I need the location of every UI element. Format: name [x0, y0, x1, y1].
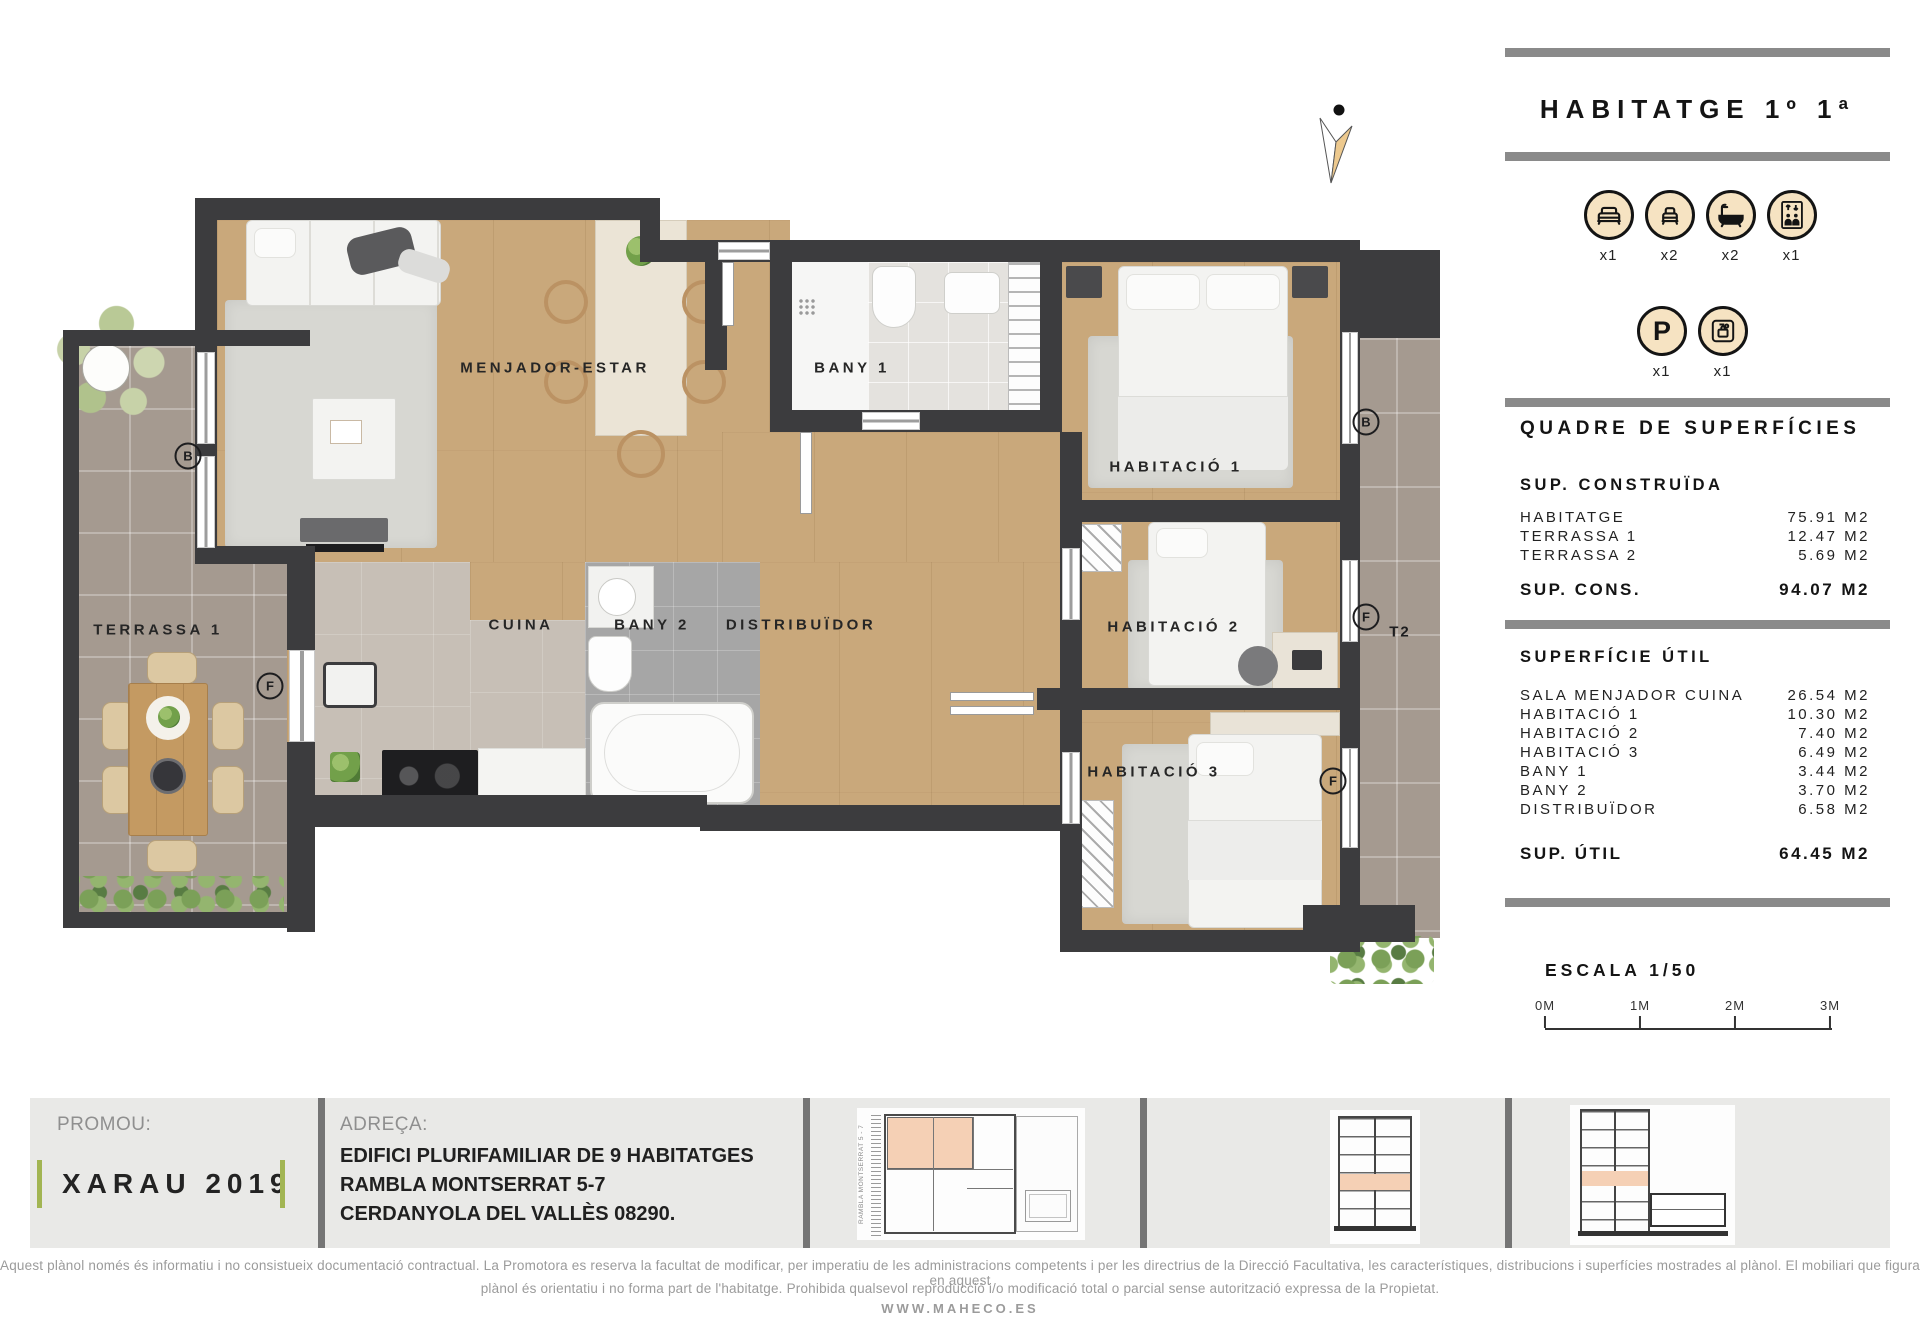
tl: 0M	[1535, 998, 1555, 1013]
room-label: TERRASSA 1	[93, 622, 222, 639]
i	[887, 1169, 1013, 1170]
window	[1342, 748, 1358, 848]
terrace-chair	[212, 766, 244, 814]
surface-row: SALA MENJADOR CUINA26.54 M2	[1520, 686, 1870, 705]
siteplan-hatch	[871, 1112, 881, 1236]
room-label: BANY 1	[814, 360, 890, 377]
circle	[1334, 105, 1345, 116]
nightstand	[1066, 266, 1102, 298]
i	[967, 1188, 1013, 1189]
logo-accent-right	[280, 1160, 285, 1208]
surface-row: BANY 13.44 M2	[1520, 762, 1870, 781]
i	[1374, 1116, 1376, 1226]
door-opening	[1062, 548, 1080, 620]
span: 3.70 M2	[1798, 781, 1870, 800]
bar	[1505, 48, 1890, 57]
window	[1342, 560, 1358, 642]
tree-top	[82, 344, 130, 392]
section-thumbnail-2	[1570, 1105, 1735, 1245]
sofa-cushion	[254, 228, 296, 258]
amenity: x1	[1694, 306, 1751, 380]
terrace-door	[289, 650, 315, 742]
bath2-toilet	[588, 636, 632, 692]
plan-marker: T2	[1389, 624, 1411, 641]
wall	[1060, 500, 1358, 522]
g	[1782, 202, 1802, 228]
storage-icon	[1698, 306, 1748, 356]
terrace-vase-plant	[158, 706, 180, 728]
bed3-duvet	[1188, 820, 1322, 880]
nightstand	[1292, 266, 1328, 298]
span: 64.45 M2	[1779, 844, 1870, 864]
wall	[63, 330, 79, 928]
double-bed-icon	[1584, 190, 1634, 240]
amenity-count: x2	[1661, 247, 1679, 264]
g	[1712, 321, 1732, 341]
wall	[1040, 240, 1062, 432]
terrace-chair	[212, 702, 244, 750]
circle	[1793, 214, 1797, 218]
wall	[287, 795, 707, 827]
page-title: HABITATGE 1º 1ª	[1505, 94, 1890, 125]
wall	[287, 742, 315, 932]
room-label: HABITACIÓ 3	[1087, 764, 1220, 781]
tm	[1829, 1016, 1831, 1028]
i	[1652, 1209, 1724, 1210]
svg	[1714, 198, 1748, 232]
scale-label: ESCALA 1/50	[1545, 960, 1699, 981]
span: DISTRIBUÏDOR	[1520, 800, 1658, 819]
address-block: EDIFICI PLURIFAMILIAR DE 9 HABITATGESRAM…	[340, 1142, 754, 1229]
address-line: RAMBLA MONTSERRAT 5-7	[340, 1171, 754, 1200]
span: HABITACIÓ 1	[1520, 705, 1640, 724]
bath1-shower-floor	[782, 262, 870, 418]
wall	[287, 546, 315, 650]
fdiv	[803, 1098, 810, 1248]
bar	[1505, 898, 1890, 907]
surfaces-heading: QUADRE DE SUPERFÍCIES	[1520, 418, 1860, 440]
span: SUP. CONS.	[1520, 580, 1641, 600]
promoter-label: PROMOU:	[57, 1114, 151, 1136]
text: P	[1653, 316, 1671, 346]
tv	[306, 544, 384, 552]
room-label: CUINA	[489, 617, 554, 634]
surface-row: TERRASSA 25.69 M2	[1520, 546, 1870, 565]
bathtub-inner	[604, 714, 740, 792]
span: HABITATGE	[1520, 508, 1625, 527]
tm	[1734, 1016, 1736, 1028]
section-thumbnail-1	[1330, 1110, 1420, 1244]
window	[197, 456, 215, 548]
door-leaf	[950, 692, 1034, 701]
surface-row: HABITACIÓ 36.49 M2	[1520, 743, 1870, 762]
svg	[1592, 198, 1626, 232]
kitchen-plant	[330, 752, 360, 782]
g	[1662, 208, 1677, 224]
svg	[1775, 198, 1809, 232]
kitchen-sink	[323, 662, 377, 708]
bed1-pillow	[1206, 274, 1280, 310]
terrace-chair	[147, 652, 197, 684]
built-heading: SUP. CONSTRUÏDA	[1520, 476, 1723, 495]
amenity: x1	[1580, 190, 1637, 264]
dining-chair	[617, 430, 665, 478]
span: 5.69 M2	[1798, 546, 1870, 565]
wall	[770, 240, 792, 432]
span: SALA MENJADOR CUINA	[1520, 686, 1744, 705]
kitchen-notch	[470, 562, 586, 620]
built-total: SUP. CONS. 94.07 M2	[1520, 580, 1870, 600]
span: BANY 1	[1520, 762, 1588, 781]
g	[1719, 205, 1742, 226]
amenity-count: x1	[1600, 247, 1618, 264]
span: 12.47 M2	[1787, 527, 1870, 546]
useful-rows: SALA MENJADOR CUINA26.54 M2 HABITACIÓ 11…	[1520, 686, 1870, 819]
wall	[1303, 905, 1415, 942]
wall	[63, 330, 310, 346]
desk-3	[1210, 712, 1340, 736]
wall	[195, 198, 660, 220]
circle	[1786, 214, 1790, 218]
fdiv	[1140, 1098, 1147, 1248]
north-arrow-icon	[1310, 98, 1360, 193]
coffee-table-book	[330, 420, 362, 444]
address-label: ADREÇA:	[340, 1114, 428, 1136]
tv-console	[300, 518, 388, 542]
span: 6.49 M2	[1798, 743, 1870, 762]
siteplan-thumbnail: RAMBLA MONTSERRAT 5 - 7	[857, 1108, 1085, 1240]
door-opening	[862, 412, 920, 430]
scale-tick: 0M	[1535, 998, 1555, 1028]
span: HABITACIÓ 2	[1520, 724, 1640, 743]
terrace-chair	[147, 840, 197, 872]
tl: 3M	[1820, 998, 1840, 1013]
svg	[1653, 198, 1687, 232]
bar	[1505, 152, 1890, 161]
span: 75.91 M2	[1787, 508, 1870, 527]
surface-row: BANY 23.70 M2	[1520, 781, 1870, 800]
wall	[1060, 930, 1342, 952]
scale-tick: 3M	[1820, 998, 1840, 1028]
useful-heading: SUPERFÍCIE ÚTIL	[1520, 648, 1713, 667]
surface-row: TERRASSA 112.47 M2	[1520, 527, 1870, 546]
door-leaf	[800, 432, 812, 514]
bath2-sink	[598, 578, 636, 616]
path	[1793, 205, 1797, 210]
i	[1029, 1194, 1067, 1218]
scale-line	[1545, 1028, 1832, 1030]
amenity-count: x1	[1783, 247, 1801, 264]
room-label: HABITACIÓ 1	[1109, 459, 1242, 476]
plan-marker: F	[1353, 604, 1380, 631]
bar	[1505, 398, 1890, 407]
path	[1786, 205, 1790, 210]
amenity-count: x1	[1653, 363, 1671, 380]
surface-row: HABITACIÓ 27.40 M2	[1520, 724, 1870, 743]
bed2-pillow	[1156, 528, 1208, 558]
i	[933, 1117, 934, 1231]
surface-row: DISTRIBUÏDOR6.58 M2	[1520, 800, 1870, 819]
legal-line-2: plànol és orientatiu i no forma part de …	[0, 1281, 1920, 1296]
room-label: HABITACIÓ 2	[1107, 619, 1240, 636]
fdiv	[1505, 1098, 1512, 1248]
i	[1578, 1231, 1728, 1236]
amenity: x2	[1641, 190, 1698, 264]
rect	[1718, 330, 1727, 337]
wall	[63, 912, 313, 928]
shower-drain	[798, 298, 816, 316]
door-opening	[1062, 752, 1080, 824]
scale-tick: 2M	[1725, 998, 1745, 1028]
single-bed-icon	[1645, 190, 1695, 240]
bar	[1505, 620, 1890, 629]
room-label: MENJADOR-ESTAR	[460, 360, 650, 377]
tl: 2M	[1725, 998, 1745, 1013]
address-line: CERDANYOLA DEL VALLÈS 08290.	[340, 1200, 754, 1229]
svg	[1706, 314, 1740, 348]
scale-tick: 1M	[1630, 998, 1650, 1028]
i	[973, 1117, 974, 1169]
parking-icon: P	[1637, 306, 1687, 356]
plan-marker: B	[175, 443, 202, 470]
plan-marker: F	[257, 673, 284, 700]
door-leaf	[722, 262, 734, 326]
door-leaf	[950, 706, 1034, 715]
svg: P	[1645, 314, 1679, 348]
laptop-2	[1292, 650, 1322, 670]
span: TERRASSA 2	[1520, 546, 1638, 565]
span: 7.40 M2	[1798, 724, 1870, 743]
path	[1785, 220, 1798, 226]
floorplan-page: MENJADOR-ESTARBANY 1HABITACIÓ 1TERRASSA …	[0, 0, 1920, 1321]
terrace-bowl	[150, 758, 186, 794]
span: TERRASSA 1	[1520, 527, 1638, 546]
span: 3.44 M2	[1798, 762, 1870, 781]
tl: 1M	[1630, 998, 1650, 1013]
plan-marker: F	[1320, 768, 1347, 795]
wall	[700, 805, 1082, 831]
section2-wing	[1650, 1193, 1726, 1227]
bath1-sink	[944, 272, 1000, 314]
entry-opening	[718, 242, 770, 260]
fdiv	[318, 1098, 325, 1248]
span: HABITACIÓ 3	[1520, 743, 1640, 762]
span: 26.54 M2	[1787, 686, 1870, 705]
i	[1334, 1226, 1416, 1231]
desk-chair-2	[1238, 646, 1278, 686]
amenity: P x1	[1633, 306, 1690, 380]
i	[1614, 1109, 1616, 1231]
polygon	[1331, 126, 1352, 183]
address-line: EDIFICI PLURIFAMILIAR DE 9 HABITATGES	[340, 1142, 754, 1171]
amenity-count: x2	[1722, 247, 1740, 264]
g	[1598, 208, 1620, 224]
wall	[1352, 250, 1440, 338]
span: 6.58 M2	[1798, 800, 1870, 819]
plan-marker: B	[1353, 409, 1380, 436]
logo-accent-left	[37, 1160, 42, 1208]
tm	[1544, 1016, 1546, 1028]
siteplan-unit-highlight	[887, 1117, 973, 1169]
siteplan-street-label: RAMBLA MONTSERRAT 5 - 7	[858, 1118, 865, 1230]
toilet	[872, 266, 916, 328]
bed1-pillow	[1126, 274, 1200, 310]
built-rows: HABITATGE75.91 M2 TERRASSA 112.47 M2 TER…	[1520, 508, 1870, 565]
room-label: DISTRIBUÏDOR	[726, 617, 876, 634]
room-label: BANY 2	[614, 617, 690, 634]
useful-total: SUP. ÚTIL 64.45 M2	[1520, 844, 1870, 864]
bathtub-icon	[1706, 190, 1756, 240]
promoter-logo: XARAU 2019	[62, 1168, 292, 1200]
elevator-icon	[1767, 190, 1817, 240]
dining-chair	[544, 280, 588, 324]
surface-row: HABITATGE75.91 M2	[1520, 508, 1870, 527]
hall-floor	[722, 432, 1062, 562]
span: 10.30 M2	[1787, 705, 1870, 724]
amenity: x2	[1702, 190, 1759, 264]
surface-row: HABITACIÓ 110.30 M2	[1520, 705, 1870, 724]
path	[1719, 216, 1742, 224]
amenities-row-2: P x1 x1	[1633, 306, 1751, 380]
amenities-row-1: x1 x2 x2 x1	[1580, 190, 1820, 264]
tm	[1639, 1016, 1641, 1028]
section1-floor-highlight	[1340, 1174, 1410, 1190]
span: SUP. ÚTIL	[1520, 844, 1622, 864]
website: WWW.MAHECO.ES	[0, 1301, 1920, 1316]
wall	[1037, 688, 1358, 710]
section2-floor-highlight	[1582, 1171, 1648, 1186]
window	[197, 352, 215, 444]
span: BANY 2	[1520, 781, 1588, 800]
amenity-count: x1	[1714, 363, 1732, 380]
amenity: x1	[1763, 190, 1820, 264]
span: 94.07 M2	[1779, 580, 1870, 600]
